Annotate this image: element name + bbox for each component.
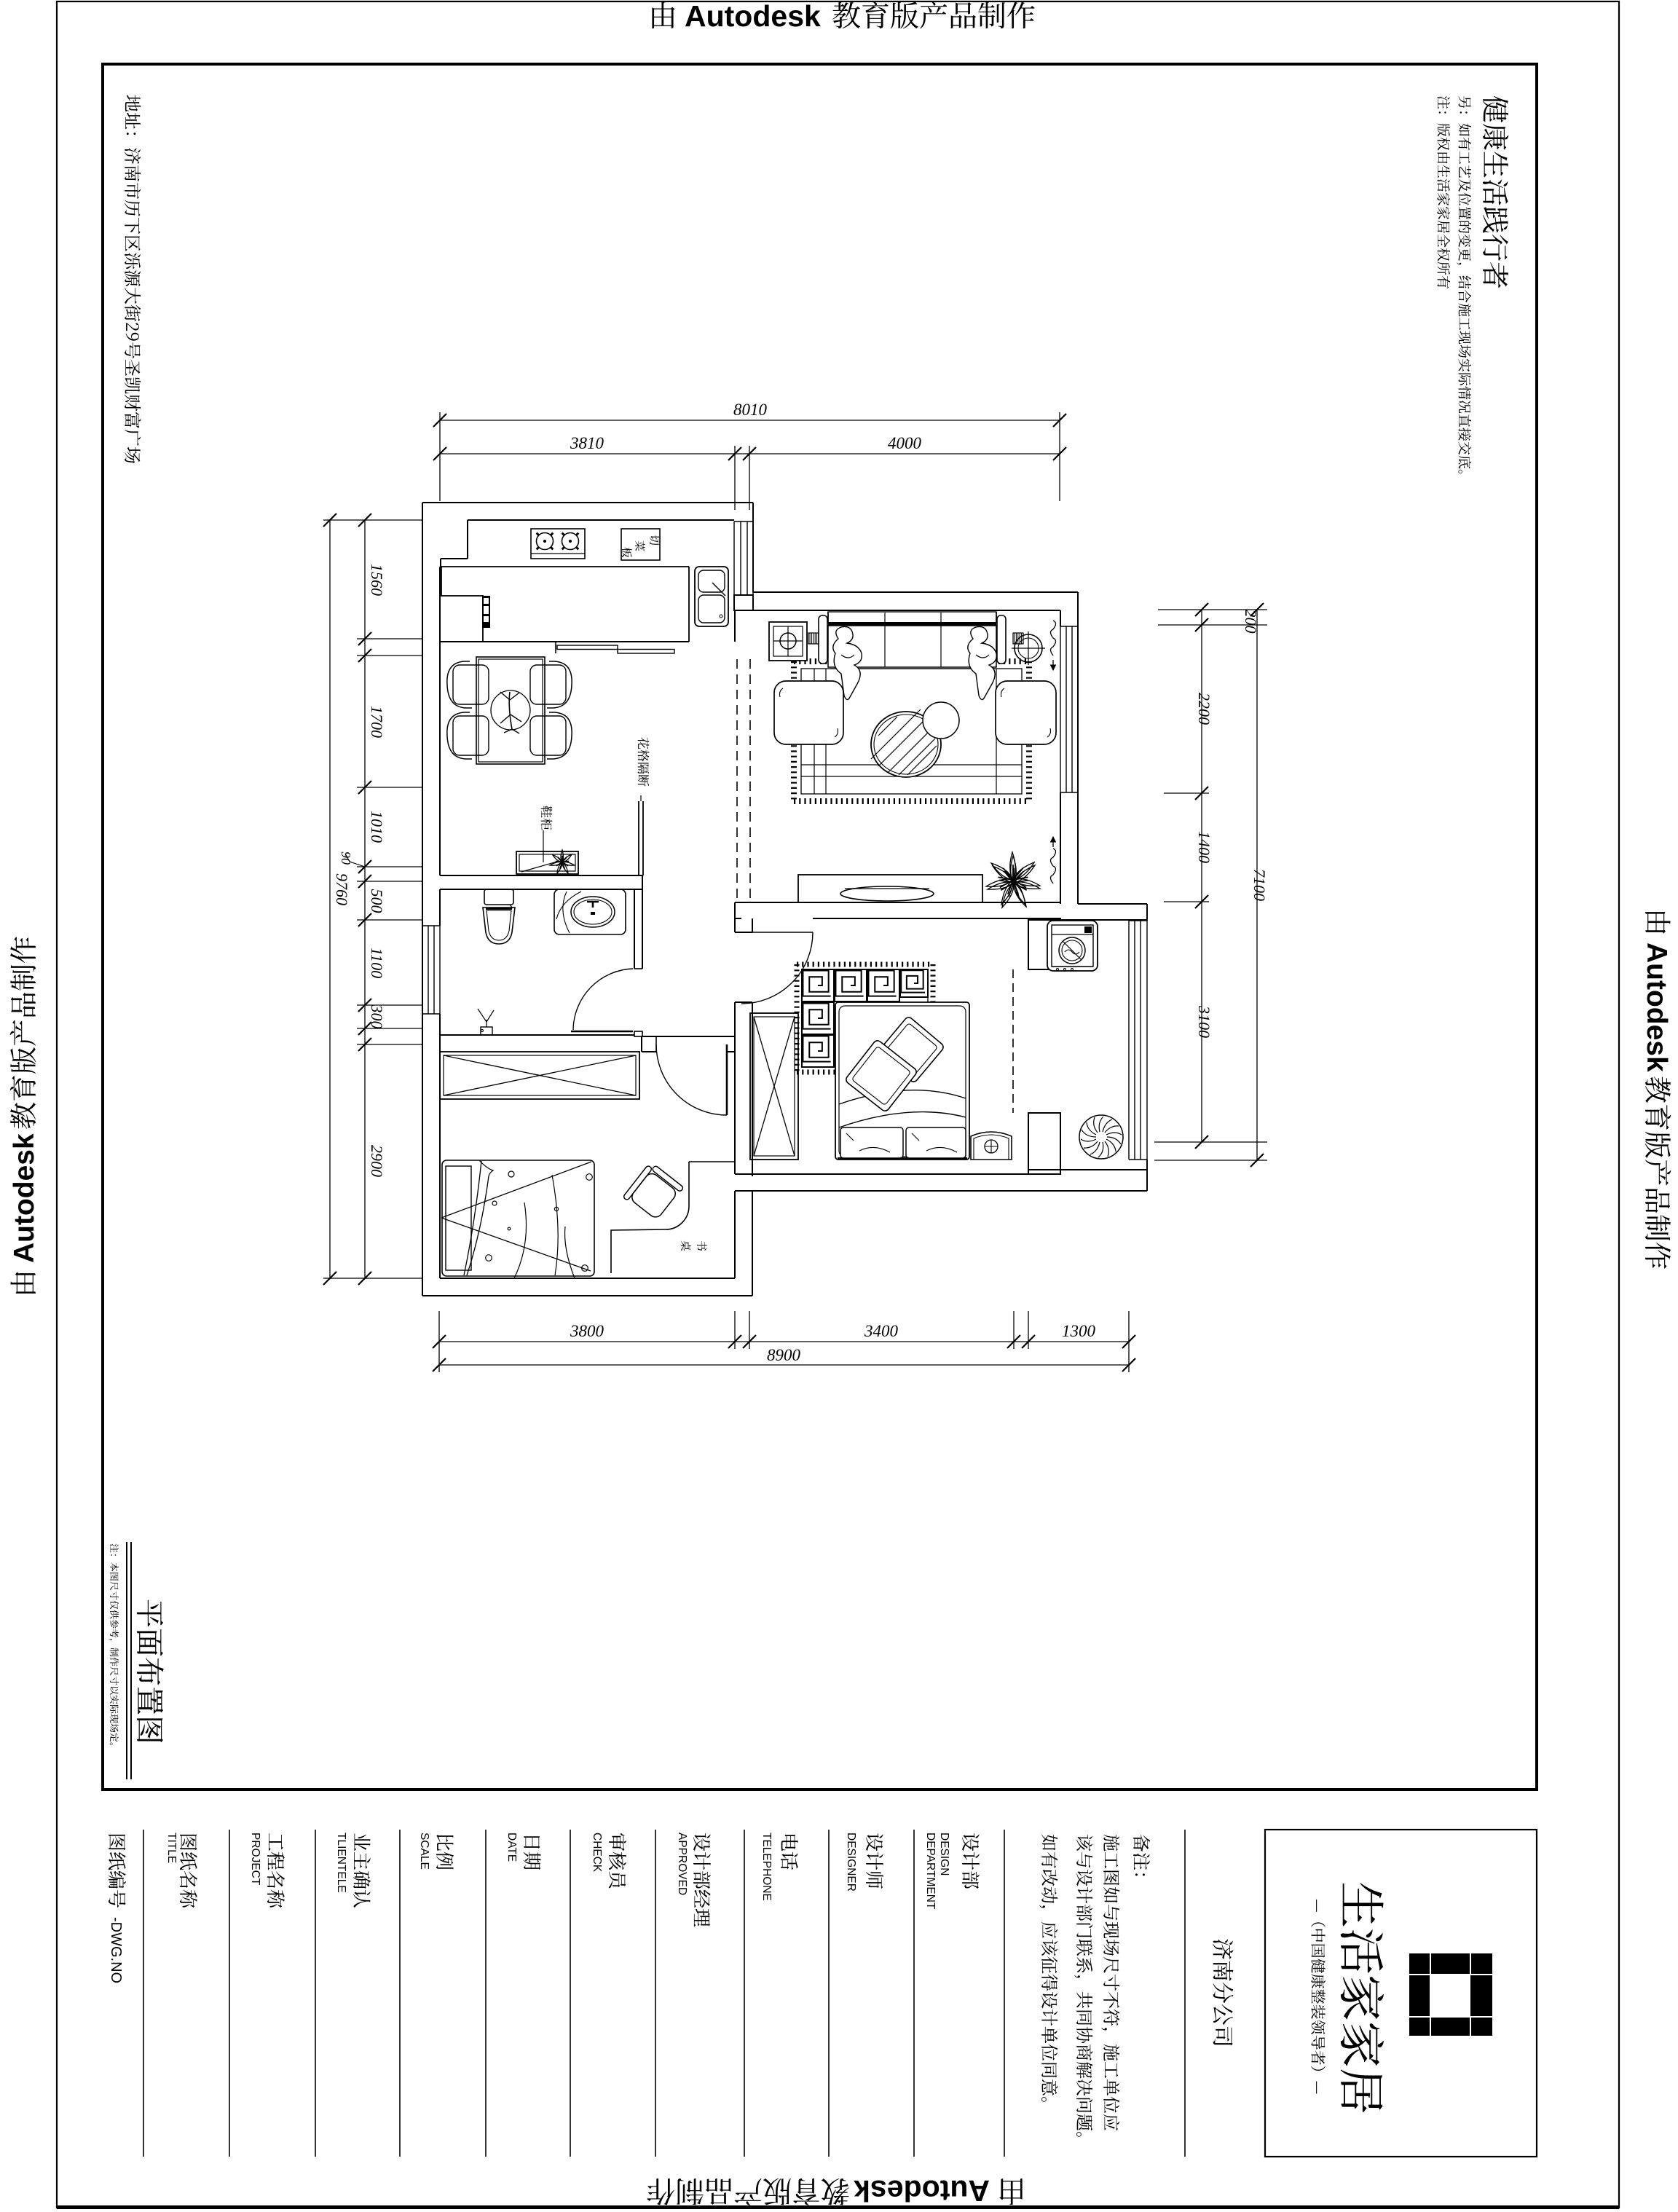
svg-text:TITLE: TITLE: [165, 1833, 178, 1863]
svg-text:Autodesk: Autodesk: [854, 2174, 990, 2208]
svg-text:Autodesk: Autodesk: [1641, 942, 1672, 1072]
svg-text:DESIGNER: DESIGNER: [845, 1833, 857, 1892]
svg-text:3400: 3400: [864, 1322, 899, 1340]
svg-text:500: 500: [368, 889, 386, 913]
svg-text:8900: 8900: [767, 1346, 801, 1364]
svg-text:7100: 7100: [1250, 869, 1269, 901]
svg-text:3800: 3800: [570, 1322, 604, 1340]
svg-text:1300: 1300: [1062, 1322, 1096, 1340]
svg-text:-DWG.NO: -DWG.NO: [108, 1917, 124, 1983]
svg-text:8010: 8010: [733, 401, 768, 419]
svg-text:1100: 1100: [368, 948, 386, 978]
svg-text:1700: 1700: [368, 706, 386, 738]
svg-text:Autodesk: Autodesk: [9, 1133, 40, 1263]
svg-text:1400: 1400: [1195, 831, 1213, 863]
svg-text:DESIGN: DESIGN: [938, 1833, 950, 1876]
svg-text:PROJECT: PROJECT: [249, 1833, 261, 1886]
svg-text:300: 300: [368, 1004, 386, 1029]
svg-text:Autodesk: Autodesk: [685, 0, 821, 33]
svg-text:1560: 1560: [368, 564, 386, 596]
svg-text:200: 200: [1242, 610, 1260, 634]
svg-text:2200: 2200: [1195, 693, 1213, 725]
svg-text:TLIENTELE: TLIENTELE: [335, 1833, 347, 1893]
svg-text:2900: 2900: [368, 1145, 386, 1177]
svg-text:SCALE: SCALE: [418, 1833, 430, 1870]
svg-text:9760: 9760: [333, 873, 351, 905]
svg-text:3100: 3100: [1195, 1005, 1213, 1038]
svg-text:APPROVED: APPROVED: [676, 1833, 688, 1895]
svg-text:1010: 1010: [368, 811, 386, 843]
svg-text:DEPARTMENT: DEPARTMENT: [924, 1833, 937, 1910]
svg-text:TELEPHONE: TELEPHONE: [760, 1833, 773, 1901]
svg-text:90: 90: [339, 851, 353, 865]
svg-text:4000: 4000: [888, 434, 922, 452]
svg-text:3810: 3810: [570, 434, 604, 452]
svg-text:CHECK: CHECK: [591, 1833, 603, 1873]
svg-text:DATE: DATE: [505, 1833, 518, 1862]
